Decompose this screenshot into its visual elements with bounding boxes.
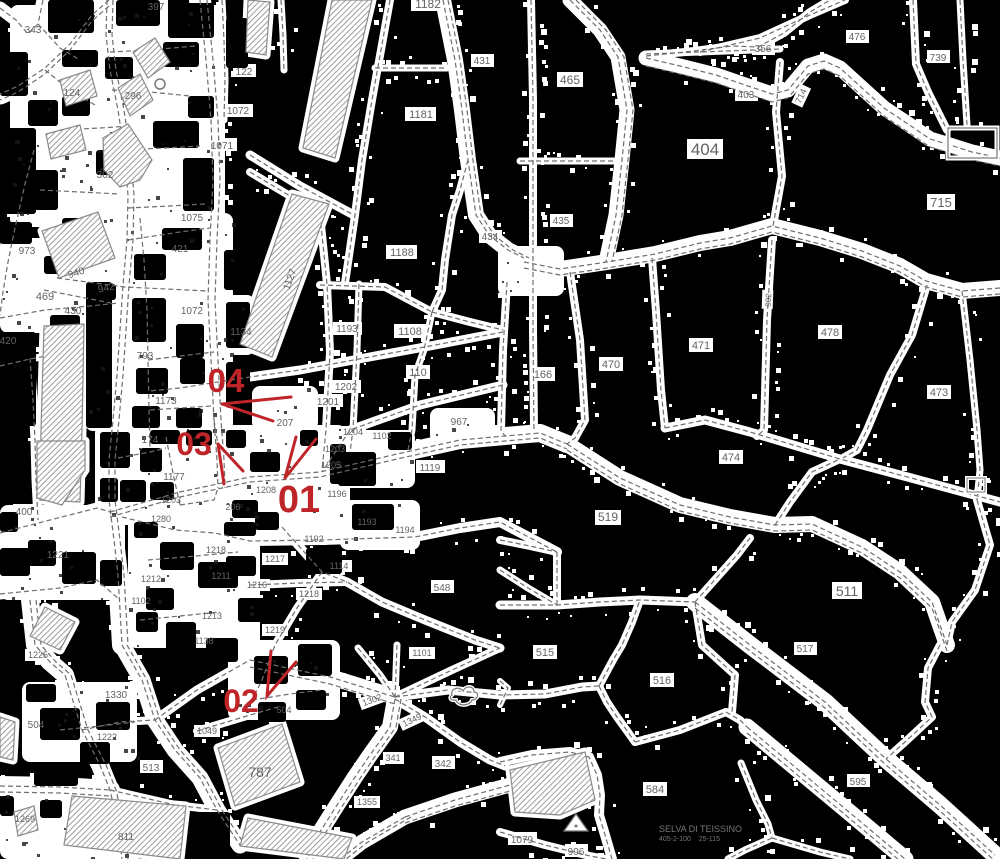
- svg-text:124: 124: [64, 88, 81, 99]
- svg-text:1049: 1049: [197, 726, 217, 736]
- svg-text:1193: 1193: [336, 324, 358, 335]
- svg-text:431: 431: [474, 56, 491, 67]
- svg-text:420: 420: [0, 336, 17, 347]
- svg-text:1072: 1072: [181, 306, 204, 317]
- svg-text:04: 04: [208, 362, 245, 399]
- svg-text:787: 787: [248, 764, 272, 780]
- svg-text:471: 471: [692, 340, 710, 352]
- svg-text:122: 122: [236, 67, 253, 78]
- svg-text:1177: 1177: [163, 472, 185, 483]
- svg-text:1192: 1192: [304, 534, 323, 544]
- svg-text:474: 474: [722, 452, 740, 464]
- svg-text:1218: 1218: [299, 589, 319, 599]
- svg-text:1330: 1330: [105, 690, 128, 701]
- svg-text:504: 504: [276, 705, 291, 715]
- svg-text:1108: 1108: [398, 326, 422, 338]
- svg-text:1182: 1182: [415, 0, 441, 11]
- svg-text:1193: 1193: [357, 517, 376, 527]
- svg-text:1114: 1114: [330, 561, 349, 571]
- svg-text:1194: 1194: [395, 525, 414, 535]
- svg-text:302: 302: [97, 170, 114, 181]
- svg-text:478: 478: [821, 327, 839, 339]
- svg-text:584: 584: [646, 784, 664, 796]
- svg-text:469: 469: [36, 291, 54, 303]
- svg-text:1188: 1188: [390, 247, 414, 259]
- svg-text:1119: 1119: [420, 463, 441, 474]
- svg-text:207: 207: [277, 418, 294, 429]
- svg-text:1196: 1196: [327, 489, 346, 499]
- svg-text:435: 435: [553, 216, 570, 227]
- svg-text:166: 166: [534, 369, 552, 381]
- svg-text:397: 397: [148, 2, 165, 13]
- svg-text:01: 01: [278, 479, 320, 521]
- svg-text:515: 515: [536, 647, 554, 659]
- svg-text:793: 793: [137, 351, 154, 362]
- svg-text:902: 902: [764, 293, 773, 307]
- svg-text:110: 110: [409, 367, 427, 379]
- svg-text:1102: 1102: [131, 596, 150, 606]
- svg-text:356: 356: [755, 44, 772, 55]
- svg-text:504: 504: [28, 720, 45, 731]
- svg-text:1217: 1217: [265, 554, 285, 564]
- svg-text:1102: 1102: [372, 431, 391, 441]
- svg-text:470: 470: [602, 359, 620, 371]
- svg-text:1202: 1202: [335, 382, 358, 393]
- svg-text:1201: 1201: [317, 397, 340, 408]
- svg-text:473: 473: [930, 387, 948, 399]
- svg-text:1225: 1225: [28, 650, 48, 660]
- svg-text:1213: 1213: [202, 611, 222, 621]
- svg-text:343: 343: [25, 25, 42, 36]
- svg-text:03: 03: [176, 426, 212, 462]
- svg-text:206: 206: [225, 502, 240, 512]
- svg-text:1203: 1203: [325, 444, 345, 454]
- svg-text:SELVA DI TEISSINO: SELVA DI TEISSINO: [659, 824, 742, 834]
- svg-text:1355: 1355: [357, 797, 377, 807]
- svg-text:595: 595: [850, 777, 867, 788]
- svg-text:1212: 1212: [141, 574, 161, 584]
- svg-text:1173: 1173: [155, 396, 177, 407]
- svg-text:811: 811: [118, 832, 134, 843]
- svg-text:1218: 1218: [206, 545, 226, 555]
- svg-text:174: 174: [142, 435, 159, 446]
- svg-text:1205: 1205: [321, 460, 341, 470]
- svg-text:1203: 1203: [161, 495, 181, 505]
- svg-text:400: 400: [16, 507, 33, 518]
- svg-text:513: 513: [143, 763, 160, 774]
- svg-text:1071: 1071: [211, 141, 234, 152]
- svg-text:1280: 1280: [151, 514, 171, 524]
- svg-text:996: 996: [568, 847, 585, 858]
- svg-text:1134: 1134: [230, 327, 252, 338]
- svg-text:973: 973: [19, 246, 36, 257]
- svg-text:1216: 1216: [247, 580, 267, 590]
- svg-text:1079: 1079: [511, 835, 534, 846]
- svg-text:465: 465: [560, 73, 580, 87]
- svg-text:519: 519: [598, 510, 618, 524]
- svg-text:405-2-100 25-115: 405-2-100 25-115: [659, 836, 720, 843]
- svg-text:1221: 1221: [47, 550, 70, 561]
- svg-text:1269: 1269: [15, 814, 35, 824]
- svg-text:1211: 1211: [211, 571, 230, 581]
- svg-text:517: 517: [797, 644, 814, 655]
- svg-text:430: 430: [65, 306, 82, 317]
- svg-text:02: 02: [223, 683, 259, 719]
- svg-text:296: 296: [125, 91, 142, 102]
- svg-text:1138: 1138: [194, 636, 213, 646]
- svg-text:516: 516: [653, 675, 671, 687]
- svg-text:1208: 1208: [256, 485, 276, 495]
- svg-text:1075: 1075: [181, 213, 204, 224]
- svg-text:341: 341: [385, 753, 400, 763]
- svg-text:548: 548: [434, 583, 451, 594]
- svg-text:1181: 1181: [409, 109, 433, 121]
- svg-text:1219: 1219: [265, 625, 285, 635]
- svg-text:404: 404: [691, 140, 719, 159]
- svg-text:403: 403: [738, 90, 755, 101]
- svg-text:434: 434: [482, 232, 499, 243]
- svg-text:511: 511: [836, 583, 859, 599]
- svg-text:715: 715: [930, 195, 952, 210]
- svg-text:1204: 1204: [343, 427, 363, 437]
- svg-text:1072: 1072: [227, 106, 250, 117]
- svg-text:1222: 1222: [97, 732, 117, 742]
- svg-text:476: 476: [849, 32, 866, 43]
- svg-text:342: 342: [435, 759, 452, 770]
- svg-text:739: 739: [930, 53, 947, 64]
- svg-text:1101: 1101: [412, 648, 431, 658]
- svg-text:967: 967: [451, 417, 468, 428]
- svg-text:421: 421: [172, 244, 189, 255]
